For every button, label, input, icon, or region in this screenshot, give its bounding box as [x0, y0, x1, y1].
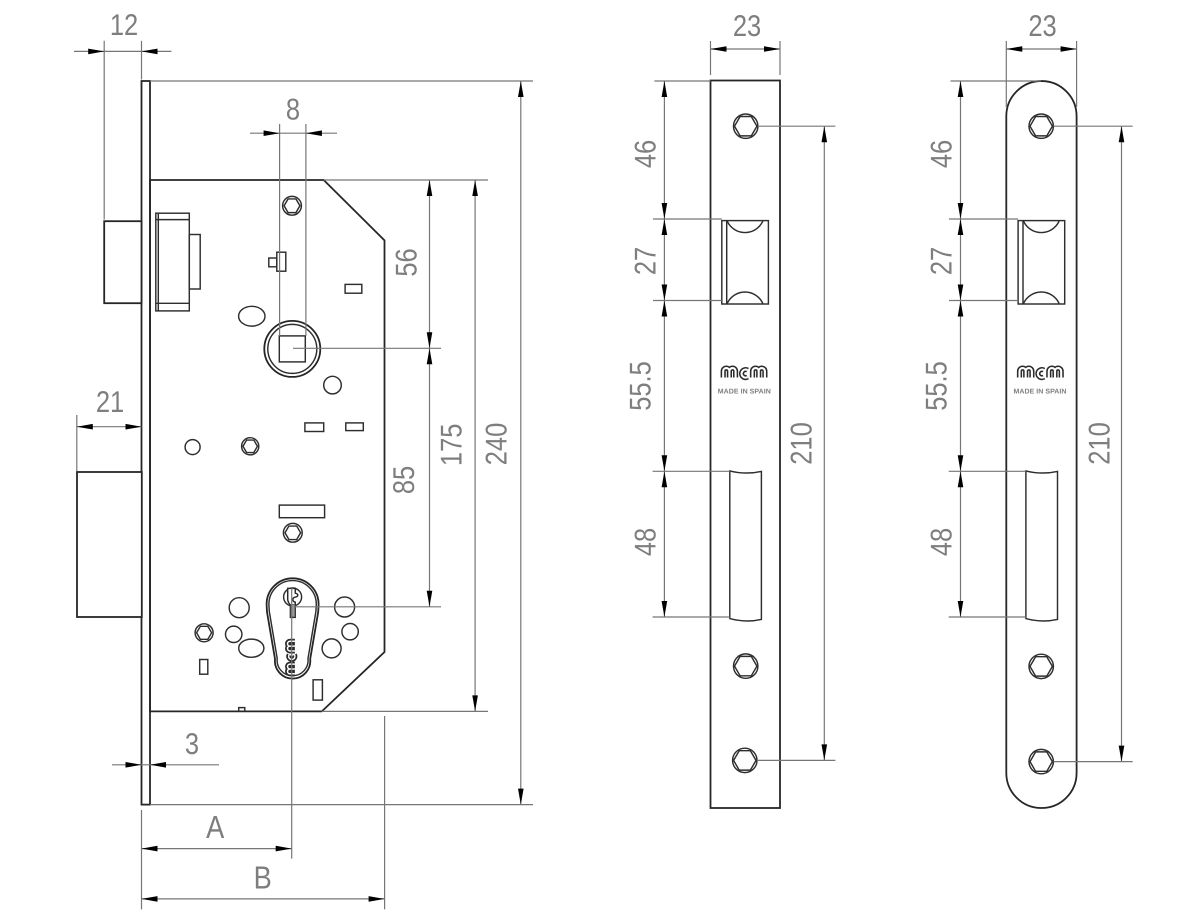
svg-text:B: B — [254, 859, 272, 895]
svg-text:240: 240 — [481, 423, 514, 466]
svg-text:175: 175 — [436, 424, 469, 467]
svg-text:210: 210 — [1084, 422, 1117, 465]
svg-text:48: 48 — [926, 528, 959, 556]
svg-text:48: 48 — [630, 528, 663, 556]
svg-text:27: 27 — [630, 247, 663, 275]
svg-text:27: 27 — [926, 247, 959, 275]
svg-text:A: A — [206, 809, 225, 845]
svg-text:46: 46 — [926, 140, 959, 168]
svg-text:55.5: 55.5 — [921, 361, 954, 411]
svg-text:21: 21 — [96, 386, 124, 419]
svg-text:8: 8 — [286, 94, 300, 127]
svg-text:210: 210 — [786, 422, 819, 465]
svg-text:55.5: 55.5 — [625, 361, 658, 411]
svg-text:23: 23 — [1028, 10, 1056, 43]
svg-text:MADE IN SPAIN: MADE IN SPAIN — [1013, 388, 1066, 395]
svg-text:MADE IN SPAIN: MADE IN SPAIN — [718, 388, 771, 395]
svg-text:3: 3 — [185, 728, 199, 761]
svg-text:12: 12 — [110, 9, 138, 42]
svg-text:85: 85 — [388, 466, 421, 494]
svg-text:23: 23 — [733, 10, 761, 43]
svg-text:56: 56 — [390, 248, 423, 276]
svg-text:46: 46 — [630, 140, 663, 168]
